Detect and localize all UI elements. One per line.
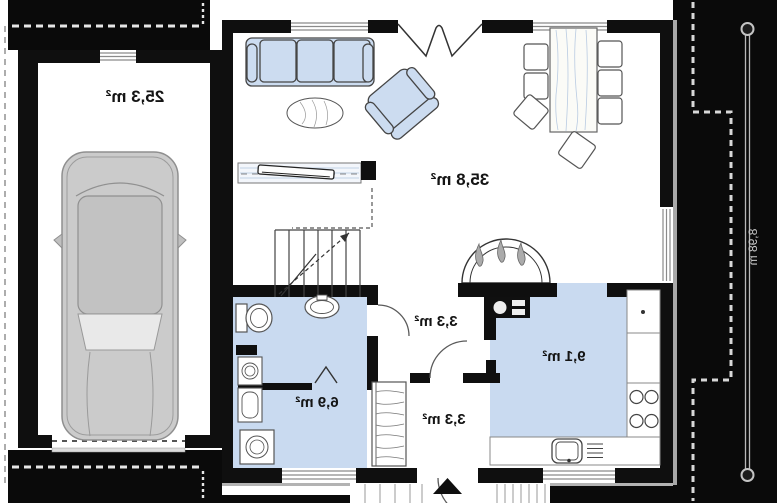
garage-area-label: 25,3 m²	[105, 87, 164, 106]
chair	[598, 70, 622, 96]
wardrobe	[372, 382, 406, 466]
shower-tray	[238, 388, 262, 422]
bathroom-window	[282, 468, 356, 483]
floor-plan-canvas: 8,98 m	[0, 0, 780, 503]
garage-window	[100, 50, 136, 63]
edge-strip-right	[673, 20, 677, 485]
dining-table	[550, 28, 597, 132]
wall-stub	[361, 161, 376, 180]
living-room-window	[291, 20, 368, 33]
toilet	[236, 304, 272, 332]
washbasin	[305, 295, 339, 318]
right-site-band	[673, 0, 777, 503]
washing-machine	[240, 430, 274, 464]
sofa	[246, 38, 374, 86]
rug	[287, 98, 343, 128]
chair	[598, 41, 622, 67]
car	[54, 152, 186, 440]
vestibule-area-label: 3,3 m²	[422, 411, 465, 428]
kitchen-counter-bottom	[490, 437, 660, 465]
living-room-area-label: 35,8 m²	[430, 170, 489, 189]
bathroom-area-label: 6,9 m²	[295, 394, 338, 411]
kitchen-window	[543, 468, 615, 483]
chair	[524, 44, 548, 70]
garage-threshold	[52, 448, 185, 452]
tv-cabinet	[238, 161, 376, 183]
kitchen-area-label: 9,1 m²	[542, 348, 585, 365]
kitchen-counter-right	[627, 290, 660, 437]
bidet	[238, 357, 262, 385]
chair	[598, 98, 622, 124]
bottom-left-band	[222, 495, 350, 503]
side-window	[660, 207, 673, 283]
floor-plan-drawing: 8,98 m	[0, 0, 780, 503]
driveway-band	[8, 450, 222, 503]
kitchen-passage	[557, 283, 607, 297]
dimension-label: 8,98 m	[746, 229, 760, 266]
hall-area-label: 3,3 m²	[414, 313, 457, 330]
